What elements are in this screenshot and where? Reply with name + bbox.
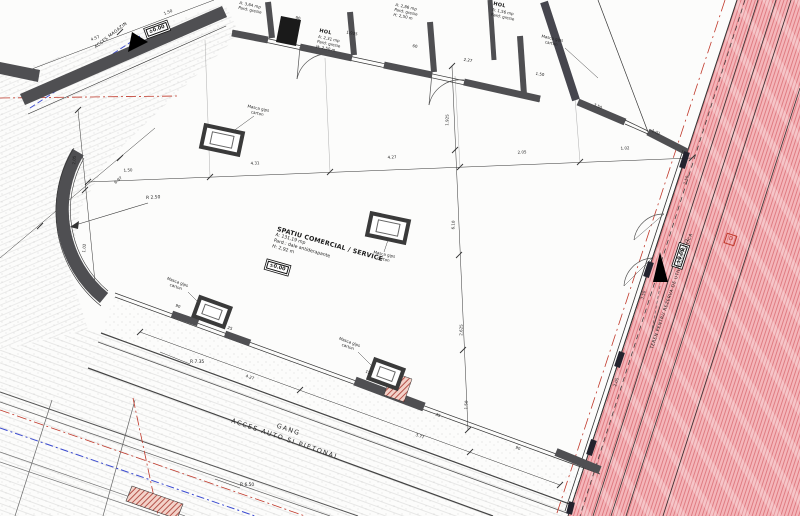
dimension-text: 1.50 bbox=[463, 400, 468, 409]
radius-label-2: R 7.35 bbox=[190, 360, 204, 365]
dimension-text: 2.05 bbox=[71, 155, 77, 164]
dimension-text: 2.625 bbox=[458, 324, 463, 336]
radius-label-3: R 6.50 bbox=[240, 483, 254, 488]
dimension-text: 90 bbox=[295, 15, 301, 21]
dimension-text: 2.05 bbox=[517, 149, 526, 154]
dimension-text: 1.02 bbox=[81, 243, 87, 252]
floor-plan-canvas: SPATIU COMERCIAL / SERVICE A: 131,19 mp … bbox=[0, 0, 800, 516]
dimension-text: 4.27 bbox=[387, 154, 396, 159]
dimension-text: 60 bbox=[412, 43, 418, 49]
dimension-text: 1.925 bbox=[444, 114, 449, 126]
dimension-text: 4.31 bbox=[250, 160, 259, 165]
dimension-text: 6.10 bbox=[450, 220, 455, 229]
dimension-text: 1.50 bbox=[123, 167, 132, 172]
room-label-hol-1: HOL A: 2,31 mp Pard: gresie H: 2,50 m bbox=[316, 28, 343, 53]
radius-label-1: R 2.50 bbox=[146, 195, 160, 201]
dimension-text: 1.02 bbox=[620, 145, 629, 150]
